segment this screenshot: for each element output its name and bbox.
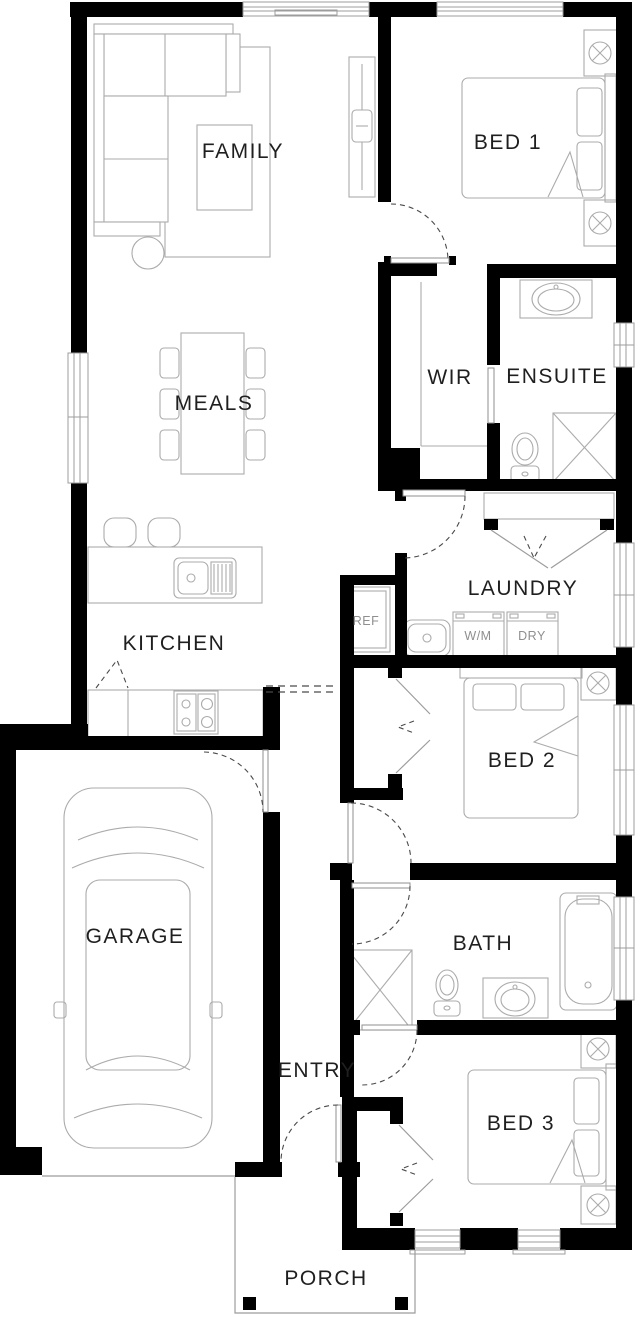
laundry-tub — [404, 620, 450, 656]
pillow — [577, 88, 602, 136]
blanket-fold — [548, 152, 583, 197]
car — [54, 788, 222, 1148]
kitchen-room — [88, 518, 263, 737]
floor-plan-page: FAMILY BED 1 WIR ENSUITE MEALS LAUNDRY K… — [0, 0, 640, 1317]
bed2-label: BED 2 — [488, 749, 556, 772]
side-table — [132, 237, 164, 269]
porch-post — [395, 1297, 408, 1310]
ensuite-door — [488, 368, 494, 423]
bed2-door — [348, 803, 411, 863]
ensuite-window — [614, 323, 634, 367]
bedside-table-lamp — [581, 1030, 616, 1068]
bathtub — [560, 893, 617, 1010]
pantry-doors — [96, 660, 128, 688]
kitchen-laundry-door — [403, 490, 465, 558]
bed3-window — [410, 1230, 465, 1254]
porch-post — [243, 1297, 256, 1310]
bed2-window — [614, 705, 634, 835]
wir-shelves — [421, 282, 487, 446]
bedside-table-lamp — [581, 1186, 616, 1224]
pillow — [473, 684, 516, 710]
pillow — [574, 1078, 599, 1124]
kitchen-bench — [88, 690, 263, 737]
stool — [148, 518, 180, 547]
washer-label: W/M — [464, 629, 491, 643]
pillow — [577, 142, 602, 190]
linen-cupboard — [484, 493, 614, 519]
shower — [553, 413, 616, 482]
linen-doors — [491, 530, 607, 568]
fridge-label: REF — [353, 614, 380, 628]
garage-entry-door — [204, 750, 268, 812]
wir-label: WIR — [427, 366, 472, 389]
family-window — [243, 2, 369, 16]
porch-label: PORCH — [284, 1267, 367, 1290]
stool — [104, 518, 136, 547]
tv-unit — [349, 57, 375, 197]
bath-door — [352, 883, 410, 944]
dryer-label: DRY — [518, 629, 546, 643]
bed2-robe-doors — [396, 679, 430, 773]
bedside-table-lamp — [581, 666, 616, 700]
bedside-table-lamp — [584, 200, 617, 246]
family-label: FAMILY — [202, 140, 284, 163]
bed1-door — [384, 204, 456, 265]
ensuite-label: ENSUITE — [506, 365, 608, 388]
kitchen-label: KITCHEN — [123, 632, 226, 655]
bath-room — [348, 893, 617, 1030]
blanket-fold — [550, 1140, 585, 1183]
bed2-room — [460, 666, 616, 818]
laundry-label: LAUNDRY — [468, 577, 578, 600]
meals-label: MEALS — [175, 392, 254, 415]
bedside-table-lamp — [584, 30, 617, 76]
pillow — [574, 1130, 599, 1176]
coffee-table — [197, 125, 252, 210]
meals-window — [68, 353, 88, 483]
toilet — [511, 433, 539, 482]
bed1-label: BED 1 — [474, 131, 542, 154]
floor-plan: FAMILY BED 1 WIR ENSUITE MEALS LAUNDRY K… — [0, 0, 640, 1317]
bed3-label: BED 3 — [487, 1112, 555, 1135]
bed3-door — [362, 1025, 417, 1085]
shower — [348, 950, 412, 1030]
bed-2 — [460, 666, 582, 818]
bed3-robe-doors — [399, 1125, 433, 1212]
laundry-door-window — [614, 543, 634, 647]
entry-label: ENTRY — [278, 1059, 356, 1082]
vanity-basin — [520, 280, 592, 318]
garage-label: GARAGE — [86, 925, 185, 948]
bath-label: BATH — [453, 932, 513, 955]
front-door — [281, 1105, 341, 1162]
vanity-basin — [483, 978, 548, 1018]
bed1-window — [437, 2, 563, 16]
bath-window — [614, 897, 634, 1000]
pillow — [521, 684, 564, 710]
bed3-window — [513, 1230, 565, 1254]
toilet — [434, 970, 460, 1016]
